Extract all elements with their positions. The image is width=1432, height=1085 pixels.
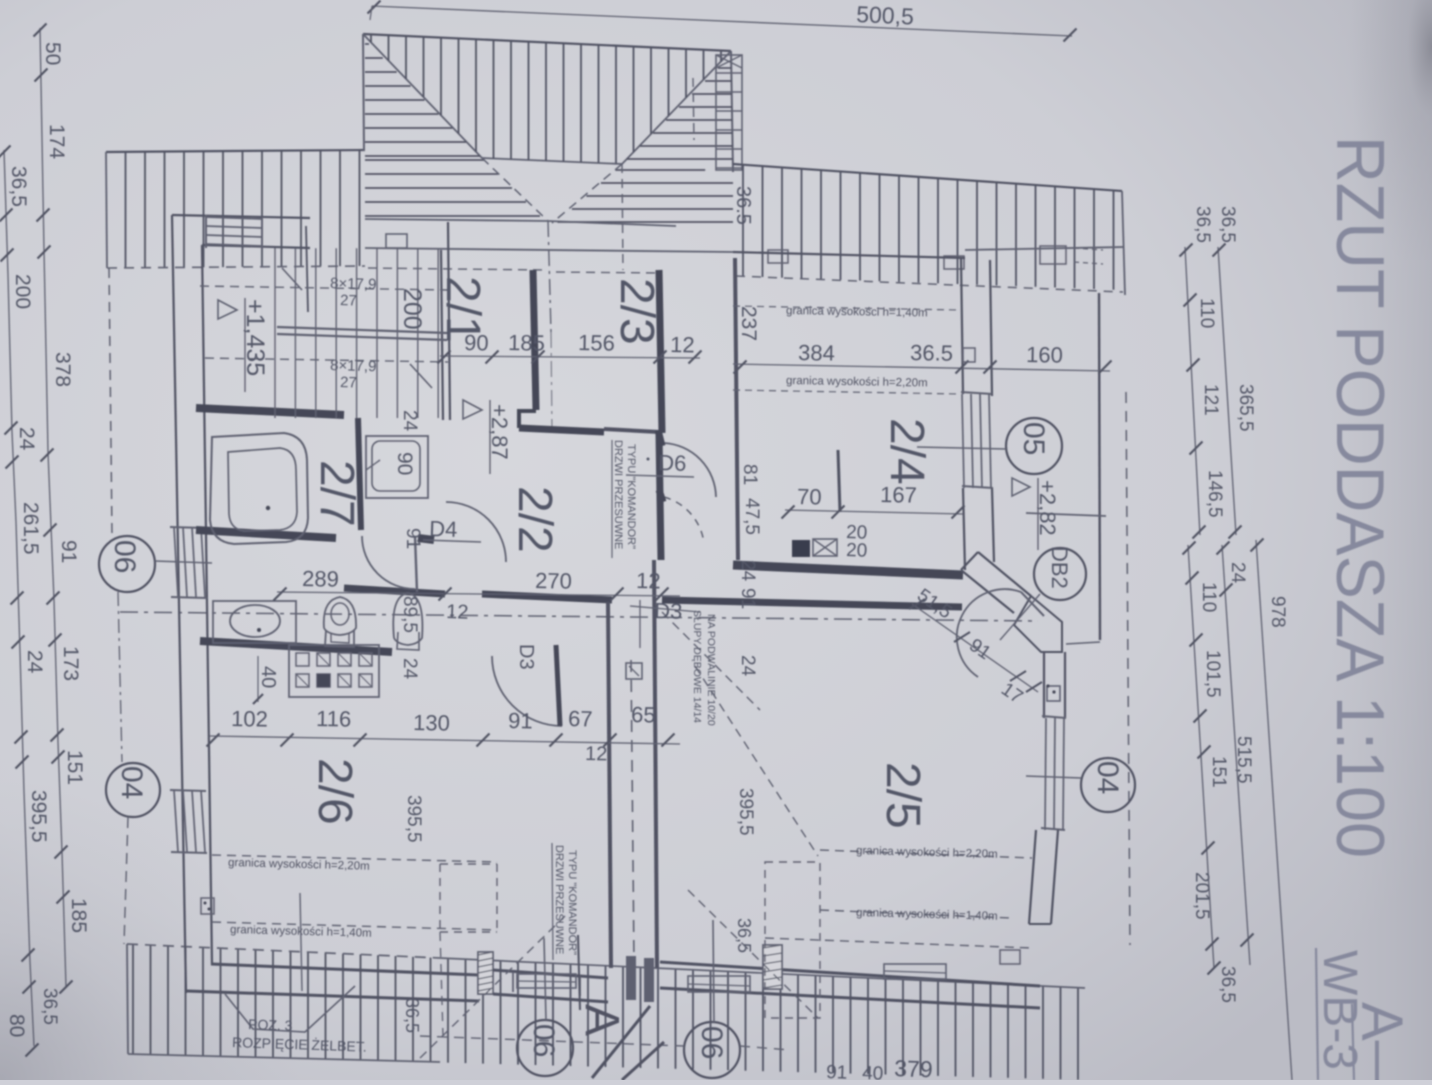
svg-text:65: 65 xyxy=(631,702,656,727)
svg-text:146,5: 146,5 xyxy=(1204,470,1225,518)
svg-text:8×17,9: 8×17,9 xyxy=(330,357,377,375)
svg-text:06: 06 xyxy=(108,540,141,573)
svg-text:365,5: 365,5 xyxy=(1235,384,1256,432)
svg-text:151: 151 xyxy=(63,750,86,785)
svg-text:04: 04 xyxy=(1091,761,1124,794)
svg-text:2/6: 2/6 xyxy=(308,758,361,825)
svg-text:2/3: 2/3 xyxy=(610,278,663,345)
svg-text:+1,435: +1,435 xyxy=(241,299,269,376)
svg-text:978: 978 xyxy=(1267,596,1288,628)
svg-text:395,5: 395,5 xyxy=(403,795,424,843)
svg-text:12: 12 xyxy=(585,743,608,765)
svg-text:24: 24 xyxy=(399,410,420,432)
svg-text:81: 81 xyxy=(739,464,760,485)
svg-text:DB2: DB2 xyxy=(1047,546,1072,589)
svg-text:24: 24 xyxy=(737,560,758,582)
svg-text:12: 12 xyxy=(446,601,469,624)
svg-text:NA PODWALINIE 10/20: NA PODWALINIE 10/20 xyxy=(705,614,717,726)
svg-text:200: 200 xyxy=(398,288,426,330)
svg-text:185: 185 xyxy=(67,898,90,933)
svg-text:2/4: 2/4 xyxy=(880,418,933,485)
svg-text:36,5: 36,5 xyxy=(734,918,754,953)
svg-text:36.5: 36.5 xyxy=(732,186,754,225)
svg-text:515,5: 515,5 xyxy=(1233,736,1254,784)
svg-text:70: 70 xyxy=(797,484,822,509)
svg-text:91: 91 xyxy=(402,528,423,549)
svg-text:granica wysokości h=2,20m: granica wysokości h=2,20m xyxy=(786,375,928,389)
svg-text:36,5: 36,5 xyxy=(1192,206,1213,243)
svg-text:156: 156 xyxy=(578,330,615,356)
svg-text:200: 200 xyxy=(11,274,34,309)
svg-text:TYPU "KOMANDOR": TYPU "KOMANDOR" xyxy=(625,444,637,549)
svg-text:160: 160 xyxy=(1026,342,1063,368)
svg-text:289: 289 xyxy=(302,566,339,592)
svg-text:395,5: 395,5 xyxy=(27,790,50,843)
svg-text:SŁUPY DĘBOWE 14/14: SŁUPY DĘBOWE 14/14 xyxy=(691,610,703,723)
svg-text:24: 24 xyxy=(737,655,758,677)
svg-text:24: 24 xyxy=(1227,562,1248,584)
svg-text:151: 151 xyxy=(1208,756,1229,788)
svg-text:40: 40 xyxy=(257,666,279,688)
svg-text:40: 40 xyxy=(862,1063,884,1080)
svg-text:91: 91 xyxy=(57,540,80,563)
svg-text:+2,82: +2,82 xyxy=(1035,480,1060,536)
svg-text:201,5: 201,5 xyxy=(1191,872,1212,920)
svg-text:50: 50 xyxy=(41,42,64,65)
svg-text:2/1: 2/1 xyxy=(436,276,489,343)
svg-text:378: 378 xyxy=(51,352,74,387)
svg-text:12: 12 xyxy=(670,332,695,357)
svg-text:12: 12 xyxy=(636,568,661,593)
svg-text:2/5: 2/5 xyxy=(876,762,929,829)
svg-text:130: 130 xyxy=(413,710,450,736)
svg-text:24: 24 xyxy=(15,427,38,451)
svg-text:27: 27 xyxy=(340,374,357,391)
svg-text:90: 90 xyxy=(393,452,416,475)
svg-text:173: 173 xyxy=(59,646,82,681)
svg-text:89,5: 89,5 xyxy=(399,596,420,633)
svg-text:174: 174 xyxy=(45,124,68,159)
svg-text:102: 102 xyxy=(231,706,268,732)
svg-text:20: 20 xyxy=(846,540,868,562)
svg-text:167: 167 xyxy=(880,482,917,508)
svg-text:A—: A— xyxy=(1349,1002,1414,1080)
svg-text:67: 67 xyxy=(568,706,593,731)
svg-text:04: 04 xyxy=(115,766,148,799)
svg-text:91: 91 xyxy=(508,708,533,733)
svg-text:36.5: 36.5 xyxy=(910,340,953,366)
svg-text:379: 379 xyxy=(894,1055,933,1080)
svg-text:05: 05 xyxy=(1017,422,1050,455)
svg-text:116: 116 xyxy=(316,706,352,732)
svg-text:500,5: 500,5 xyxy=(856,1,915,29)
svg-text:91: 91 xyxy=(826,1062,848,1080)
svg-text:261,5: 261,5 xyxy=(19,502,42,555)
svg-text:RZUT PODDASZA 1:100: RZUT PODDASZA 1:100 xyxy=(1322,136,1398,858)
svg-text:36,5: 36,5 xyxy=(1217,206,1238,243)
svg-text:POZ. 3: POZ. 3 xyxy=(248,1016,293,1034)
svg-text:185: 185 xyxy=(508,330,545,356)
svg-text:2/2: 2/2 xyxy=(508,486,561,553)
svg-text:91: 91 xyxy=(737,588,758,609)
svg-text:270: 270 xyxy=(535,568,572,594)
svg-text:DRZWI PRZESUWNE: DRZWI PRZESUWNE xyxy=(553,845,565,954)
svg-text:395,5: 395,5 xyxy=(735,788,756,836)
svg-text:237: 237 xyxy=(737,306,760,341)
svg-text:06: 06 xyxy=(695,1026,728,1059)
svg-text:384: 384 xyxy=(798,340,835,366)
svg-text:D3: D3 xyxy=(515,644,537,670)
svg-text:24: 24 xyxy=(399,658,420,680)
svg-text:A: A xyxy=(575,1004,628,1036)
svg-text:36,5: 36,5 xyxy=(7,166,30,207)
svg-text:36,5: 36,5 xyxy=(402,998,422,1033)
svg-text:D6: D6 xyxy=(658,450,687,476)
svg-text:121: 121 xyxy=(1200,384,1221,416)
svg-text:101,5: 101,5 xyxy=(1202,650,1223,698)
svg-text:TYPU "KOMANDOR": TYPU "KOMANDOR" xyxy=(566,850,578,955)
svg-text:80: 80 xyxy=(5,1014,28,1037)
svg-text:D4: D4 xyxy=(429,516,458,542)
svg-text:110: 110 xyxy=(1198,582,1219,612)
svg-text:+2,87: +2,87 xyxy=(487,404,512,460)
svg-text:47,5: 47,5 xyxy=(741,498,762,535)
svg-text:36,5: 36,5 xyxy=(39,988,60,1025)
svg-text:36,5: 36,5 xyxy=(1217,966,1238,1003)
svg-text:D3: D3 xyxy=(654,598,683,624)
svg-text:DRZWI PRZESUWNE: DRZWI PRZESUWNE xyxy=(612,440,624,549)
svg-text:110: 110 xyxy=(1196,298,1217,328)
svg-text:27: 27 xyxy=(340,292,357,309)
svg-text:24: 24 xyxy=(23,650,46,674)
svg-text:2/7: 2/7 xyxy=(310,460,363,527)
svg-text:8×17,9: 8×17,9 xyxy=(330,275,377,293)
